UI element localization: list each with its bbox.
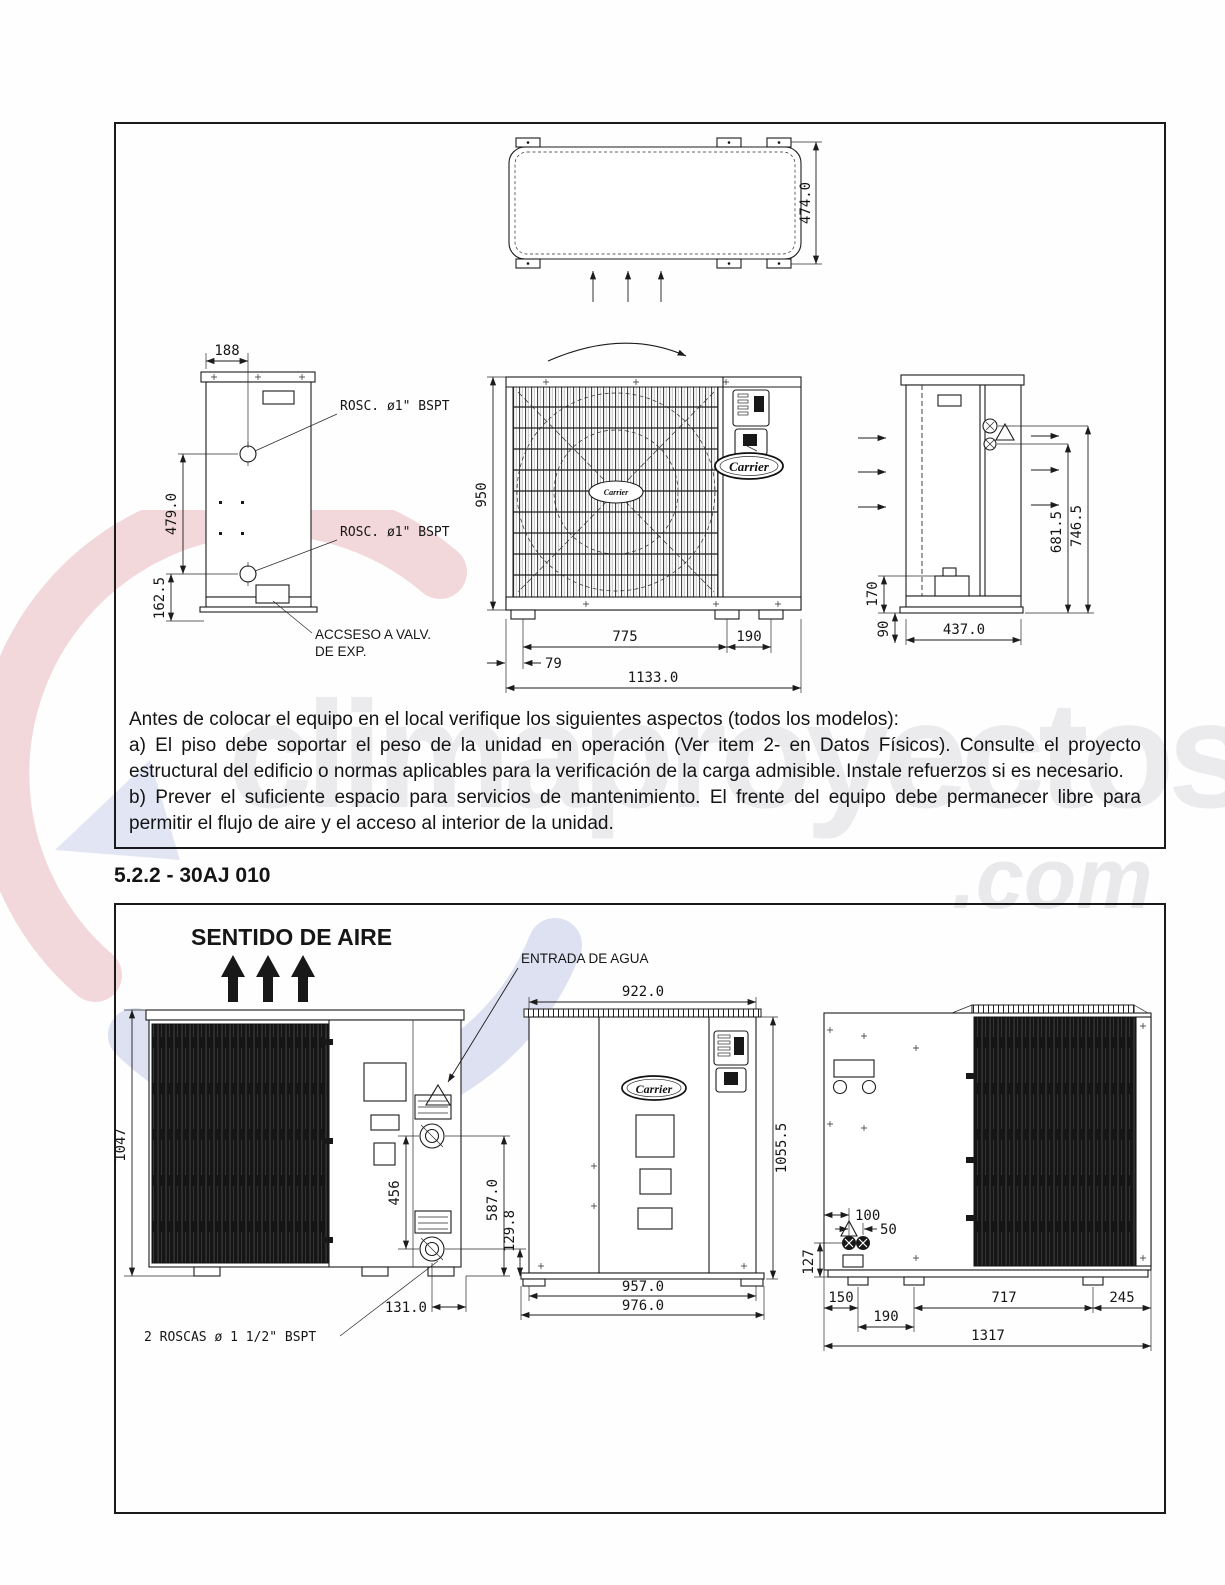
fig2-right-feet [848,1277,1103,1285]
fig1-compressor-box [935,576,969,596]
fig1-top-view: 474.0 [509,138,822,361]
fig1-access-panel [256,585,289,603]
up-arrow-icon [291,955,315,1002]
fig1-feet-right-dim: 190 [736,629,761,645]
fig2-coil-right [974,1017,1136,1266]
fig1-airflow-in-arrows [858,438,886,507]
fig1-overall-width-dim: 1133.0 [628,670,679,686]
fig1-left-side-view: 188 479.0 162.5 ROSC. ø1" BSPT ROSC. ø1"… [152,343,450,659]
fig2-right-side-view: 100 50 127 [801,1005,1151,1351]
fig1-access-label-1: ACCSESO A VALV. [315,627,431,642]
fig2-coil-left [152,1024,329,1263]
fig1-right-side-view: 746.5 681.5 170 90 437.0 [858,375,1094,645]
fig1-thread-label-lower: ROSC. ø1" BSPT [340,525,450,540]
fig1-front-height-dim: 950 [474,482,490,507]
fig1-control-panel [733,390,769,455]
fig2-conn-height-dim: 127 [801,1249,817,1274]
fig2-air-flow-label: SENTIDO DE AIRE [191,924,392,950]
fig1-thread-label-upper: ROSC. ø1" BSPT [340,399,450,414]
fig2-top-width-dim: 922.0 [622,984,664,1000]
fig1-depth-dim: 437.0 [943,622,985,638]
figure1-drawing: 474.0 [116,124,1164,702]
up-arrow-icon [221,955,245,1002]
fig2-left-feet [194,1267,454,1276]
fig2-conn-spacing-dim: 456 [387,1180,403,1205]
manual-page: climaproyectos .com [0,0,1225,1585]
fig1-brand-text: Carrier [729,459,770,474]
fig1-lower-conn-dim: 681.5 [1049,511,1065,553]
fig1-feet-span-dim: 775 [612,629,637,645]
fig1-base-height-dim: 90 [876,621,892,638]
fig2-overall-width-dim-r: 1317 [971,1328,1005,1344]
fig2-front-view: 922.0 Carrier [521,984,790,1320]
fig1-brand-logo: Carrier [715,453,783,479]
fig1-feet [511,610,783,619]
fig2-overall-width-dim: 976.0 [622,1298,664,1314]
fig2-right-offset-dim: 245 [1109,1290,1134,1306]
fig2-upper-conn-dim: 587.0 [485,1179,501,1221]
fig2-base-width-dim: 957.0 [622,1279,664,1295]
fig1-left-mid-dim: 479.0 [164,493,180,535]
fig2-left-height-dim: 1047 [116,1128,129,1162]
figure1-panel: 474.0 [114,122,1166,849]
fig2-foot-offset-dim: 150 [828,1290,853,1306]
fig1-access-label-2: DE EXP. [315,644,367,659]
fig1-left-offset-dim: 79 [545,656,562,672]
fig2-conn-gap-dim: 50 [880,1222,897,1238]
fig2-air-direction: SENTIDO DE AIRE [191,924,392,1002]
fig1-rotation-arc [548,343,686,361]
fig1-upper-conn-dim: 746.5 [1069,505,1085,547]
fig1-left-top-dim: 188 [214,343,239,359]
fig1-fan-brand: Carrier [604,488,629,497]
fig2-conn-offset-dim-r: 100 [855,1208,880,1224]
fig2-brand-logo: Carrier [622,1076,686,1100]
section-heading: 5.2.2 - 30AJ 010 [114,864,270,888]
fig2-foot-pair-dim: 190 [873,1309,898,1325]
fig1-airflow-out-arrows [1031,436,1059,505]
fig2-water-inlet-label: ENTRADA DE AGUA [521,951,649,966]
fig2-brand-text: Carrier [636,1082,673,1096]
fig1-left-bottom-dim: 162.5 [152,577,168,619]
installation-notes: Antes de colocar el equipo en el local v… [129,707,1141,837]
notes-item-a: a) El piso debe soportar el peso de la u… [129,733,1141,785]
figure2-drawing: SENTIDO DE AIRE [116,905,1164,1507]
fig2-control-panel [714,1031,748,1092]
fig2-thread-label: 2 ROSCAS ø 1 1/2" BSPT [144,1330,316,1345]
fig2-conn-offset-dim: 131.0 [385,1300,427,1316]
up-arrow-icon [256,955,280,1002]
fig2-front-height-dim: 1055.5 [774,1123,790,1174]
figure2-panel: SENTIDO DE AIRE [114,903,1166,1514]
notes-item-b: b) Prever el suficiente espacio para ser… [129,785,1141,837]
fig1-airflow-arrows [593,271,661,302]
fig2-lower-conn-dim: 129.8 [502,1210,518,1252]
fig1-front-view: Carrier Carrier [474,377,801,693]
fig1-top-height-dim: 474.0 [798,182,814,224]
fig1-box-height-dim: 170 [865,581,881,606]
fig2-foot-span-dim: 717 [991,1290,1016,1306]
notes-intro: Antes de colocar el equipo en el local v… [129,707,1141,733]
